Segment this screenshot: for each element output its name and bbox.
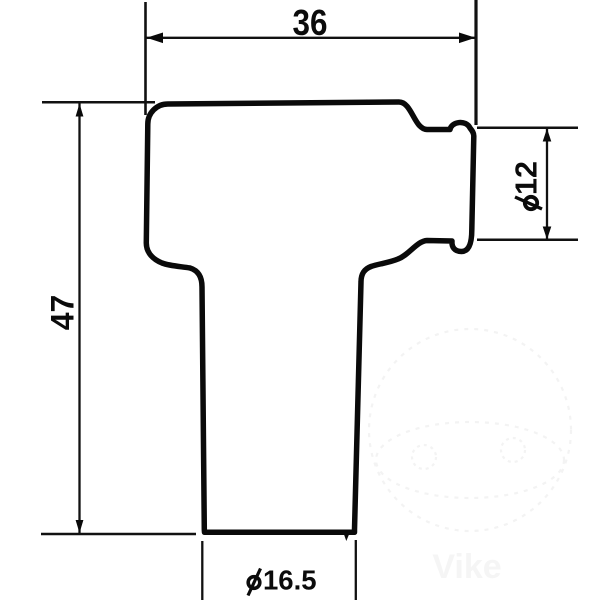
svg-text:47: 47 [45,295,81,331]
svg-text:36: 36 [293,2,328,43]
svg-text:12: 12 [510,161,544,195]
svg-text:Vike: Vike [432,548,501,586]
svg-text:16.5: 16.5 [263,565,317,596]
